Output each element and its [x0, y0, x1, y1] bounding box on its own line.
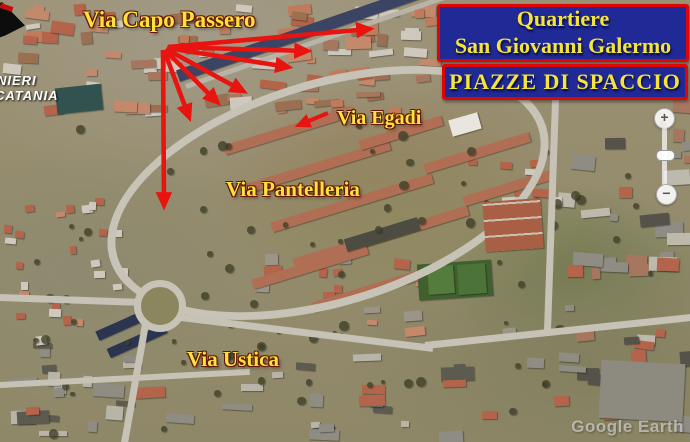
subtitle-label: PIAZZE DI SPACCIO: [445, 69, 685, 95]
road: [165, 312, 434, 352]
district-title-line2: San Giovanni Galermo: [440, 33, 686, 60]
street-label-via-ustica: Via Ustica: [187, 347, 279, 372]
street-label-via-capo-passero: Via Capo Passero: [83, 7, 256, 33]
street-label-via-egadi: Via Egadi: [337, 107, 421, 130]
roundabout: [134, 280, 186, 332]
zoom-out-button[interactable]: −: [656, 184, 677, 205]
street-label-via-pantelleria: Via Pantelleria: [226, 177, 360, 202]
google-earth-watermark: Google Earth: [571, 417, 684, 437]
satellite-map[interactable]: Via Capo Passero Via Egadi Via Panteller…: [0, 0, 690, 442]
sports-courts: [482, 198, 543, 252]
district-title-line1: Quartiere: [440, 6, 686, 33]
zoom-control: + −: [650, 106, 680, 206]
carabinieri-caption-line1: NIERI: [0, 73, 37, 88]
road: [0, 294, 140, 306]
zoom-in-button[interactable]: +: [654, 108, 675, 129]
road: [425, 314, 690, 349]
district-title-box: Quartiere San Giovanni Galermo: [437, 4, 689, 62]
carabinieri-caption-line2: CATANIA: [0, 88, 59, 103]
subtitle-box: PIAZZE DI SPACCIO: [442, 64, 688, 100]
zoom-slider-handle[interactable]: [656, 150, 675, 161]
